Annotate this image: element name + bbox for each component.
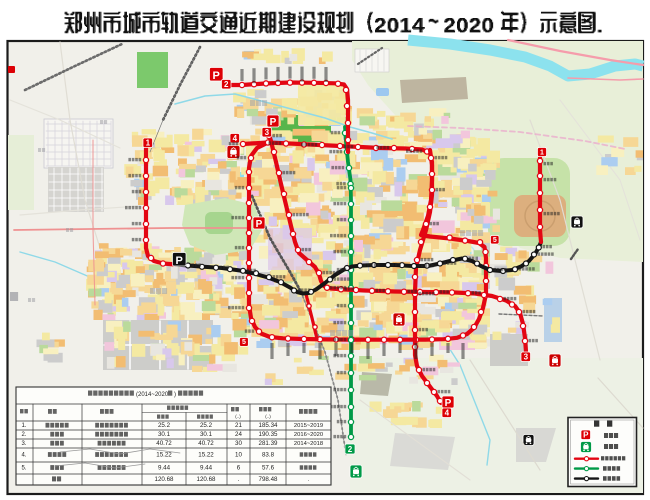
- svg-text:2016~2020: 2016~2020: [294, 432, 323, 438]
- svg-text:P: P: [583, 430, 589, 439]
- svg-text:281.39: 281.39: [259, 440, 278, 447]
- svg-text:25.2: 25.2: [158, 422, 171, 429]
- svg-text:83.8: 83.8: [262, 452, 275, 459]
- svg-text:10: 10: [235, 452, 242, 459]
- svg-text:P: P: [213, 70, 220, 82]
- svg-text:(..): (..): [235, 414, 241, 419]
- svg-text:9.44: 9.44: [200, 465, 213, 472]
- svg-text:120.68: 120.68: [197, 476, 216, 483]
- svg-text:24: 24: [235, 431, 242, 438]
- svg-text:4: 4: [445, 408, 450, 417]
- svg-text:57.6: 57.6: [262, 465, 275, 472]
- svg-text:3: 3: [524, 352, 529, 361]
- svg-text:30.1: 30.1: [158, 431, 171, 438]
- svg-text:40.72: 40.72: [156, 440, 172, 447]
- svg-text:4.: 4.: [21, 453, 26, 459]
- svg-text:1.: 1.: [21, 423, 26, 429]
- svg-text:.: .: [238, 476, 240, 483]
- svg-text:9.44: 9.44: [158, 465, 171, 472]
- svg-text:4: 4: [233, 134, 238, 143]
- svg-text:30: 30: [235, 440, 242, 447]
- svg-text:6: 6: [237, 465, 241, 472]
- svg-text:15.22: 15.22: [156, 452, 172, 459]
- svg-text:1: 1: [540, 149, 544, 156]
- svg-text:P: P: [256, 219, 263, 230]
- svg-text:798.48: 798.48: [259, 476, 278, 483]
- svg-text:P: P: [445, 398, 452, 409]
- svg-text:15.22: 15.22: [198, 452, 214, 459]
- svg-text:3.: 3.: [21, 441, 26, 447]
- svg-text:25.2: 25.2: [200, 422, 213, 429]
- svg-text:30.1: 30.1: [200, 431, 213, 438]
- svg-text:2014~2018: 2014~2018: [294, 441, 323, 447]
- svg-text:40.72: 40.72: [198, 440, 214, 447]
- svg-text:185.34: 185.34: [259, 422, 278, 429]
- svg-text:(2014~2020: (2014~2020: [136, 392, 169, 398]
- svg-text:5: 5: [493, 237, 497, 244]
- svg-text:P: P: [176, 255, 183, 267]
- svg-text:5: 5: [242, 339, 246, 346]
- svg-text:21: 21: [235, 422, 242, 429]
- svg-text:(..): (..): [265, 414, 271, 419]
- svg-text:2.: 2.: [21, 432, 26, 438]
- svg-text:P: P: [270, 117, 277, 128]
- svg-text:2015~2019: 2015~2019: [294, 423, 323, 429]
- svg-text:2: 2: [224, 80, 229, 89]
- svg-text:120.68: 120.68: [155, 476, 174, 483]
- svg-text:1: 1: [146, 138, 151, 147]
- svg-text:190.35: 190.35: [259, 431, 278, 438]
- svg-text:2: 2: [348, 445, 353, 454]
- svg-text:): ): [174, 392, 176, 398]
- svg-text:3: 3: [265, 128, 270, 137]
- svg-text:5.: 5.: [21, 466, 26, 472]
